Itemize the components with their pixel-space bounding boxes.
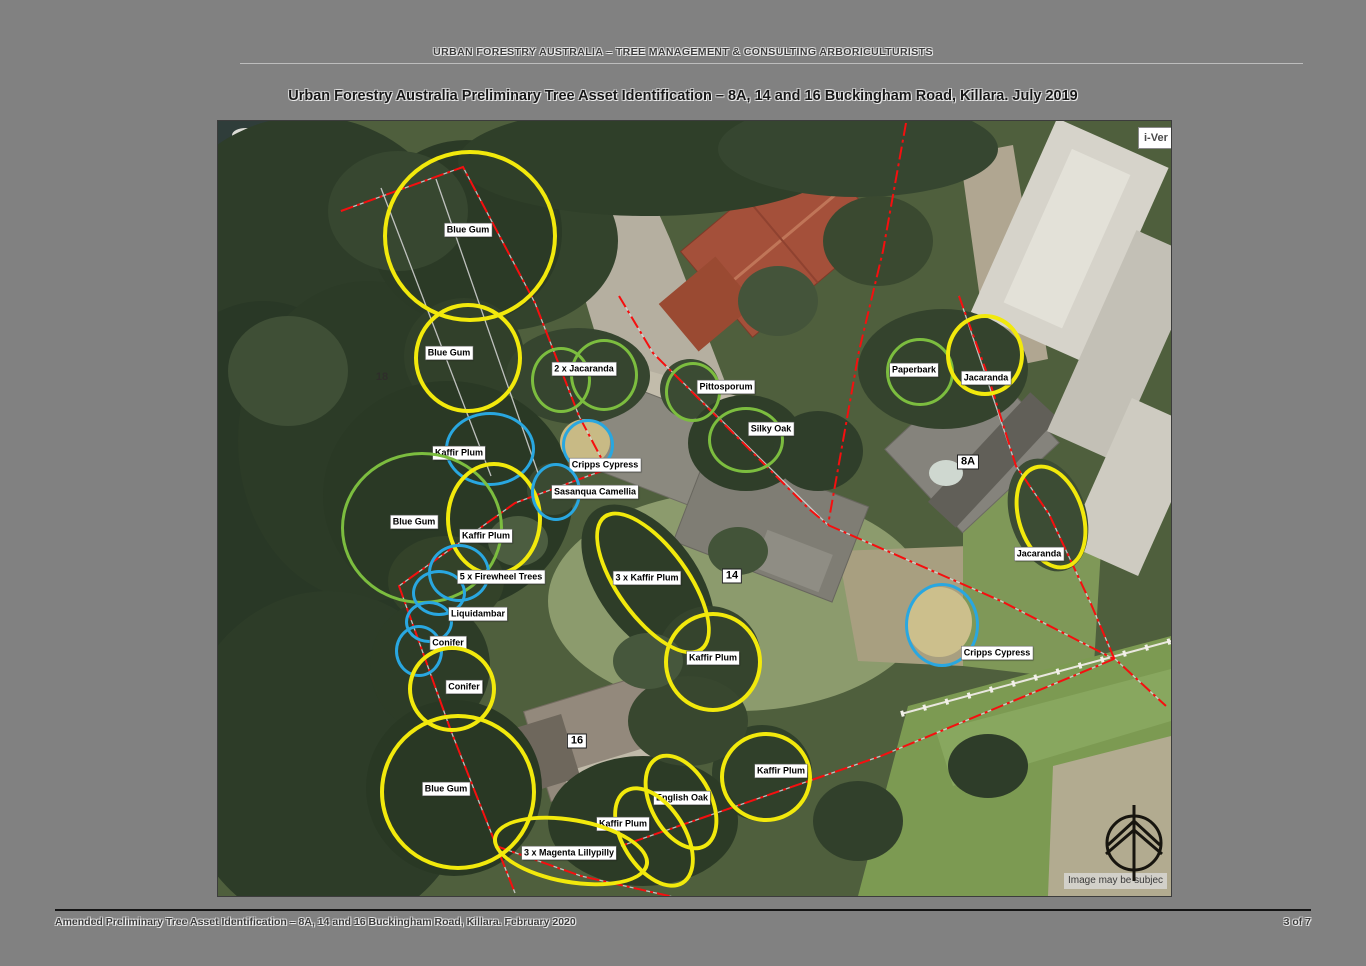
aerial-map: Blue GumBlue Gum2 x JacarandaPittosporum…	[217, 120, 1172, 897]
document-footer: Amended Preliminary Tree Asset Identific…	[55, 916, 576, 928]
tree-label: Kaffir Plum	[755, 765, 807, 778]
tree-label: Kaffir Plum	[460, 530, 512, 543]
tree-label: 3 x Kaffir Plum	[613, 572, 680, 585]
tree-label: Jacaranda	[962, 372, 1011, 385]
house-number: 18	[376, 371, 388, 383]
tree-label: Cripps Cypress	[962, 647, 1033, 660]
tree-label: Jacaranda	[1015, 548, 1064, 561]
tree-label: Blue Gum	[445, 224, 492, 237]
tree-circle	[708, 407, 784, 473]
urban-forestry-logo	[1090, 797, 1172, 885]
tree-label: Silky Oak	[749, 423, 794, 436]
house-number: 16	[567, 734, 587, 749]
tree-label: 3 x Magenta Lillypilly	[522, 847, 616, 860]
tree-label: Conifer	[446, 681, 482, 694]
document-page: URBAN FORESTRY AUSTRALIA – TREE MANAGEME…	[0, 0, 1366, 966]
house-number: 14	[722, 569, 742, 584]
tree-label: Kaffir Plum	[687, 652, 739, 665]
document-header: URBAN FORESTRY AUSTRALIA – TREE MANAGEME…	[0, 46, 1366, 58]
page-title: Urban Forestry Australia Preliminary Tre…	[0, 88, 1366, 104]
tree-label: Paperbark	[890, 364, 938, 377]
tree-label: Liquidambar	[449, 608, 507, 621]
tree-annotation-layer: Blue GumBlue Gum2 x JacarandaPittosporum…	[218, 121, 1171, 896]
tree-label: Blue Gum	[426, 347, 473, 360]
tree-label: 2 x Jacaranda	[552, 363, 616, 376]
tree-label: Cripps Cypress	[570, 459, 641, 472]
tree-label: Blue Gum	[423, 783, 470, 796]
tree-label: Sasanqua Camellia	[552, 486, 638, 499]
house-number: 8A	[957, 455, 979, 470]
tree-label: Blue Gum	[391, 516, 438, 529]
header-rule	[240, 63, 1303, 64]
tree-label: 5 x Firewheel Trees	[458, 571, 545, 584]
map-corner-button[interactable]: i-Ver	[1138, 127, 1172, 149]
tree-label: Pittosporum	[698, 381, 755, 394]
page-number: 3 of 7	[1284, 916, 1311, 928]
footer-rule	[55, 909, 1311, 911]
